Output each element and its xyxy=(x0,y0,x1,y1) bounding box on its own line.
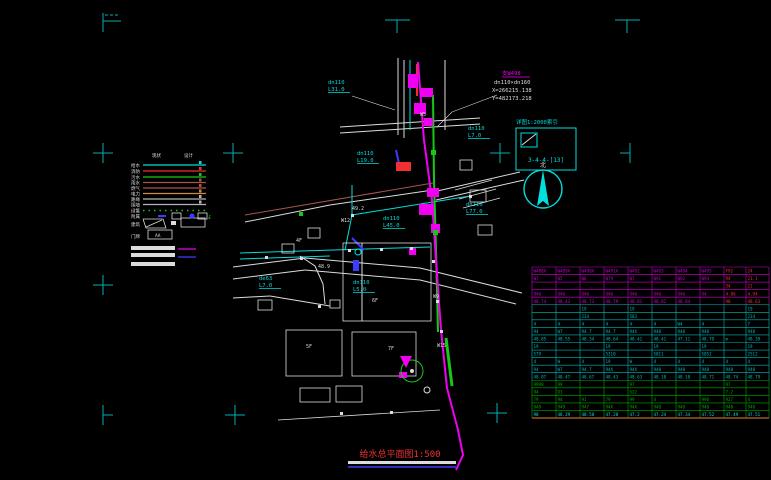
svg-text:4: 4 xyxy=(678,359,681,364)
svg-text:48.79: 48.79 xyxy=(606,299,619,304)
svg-text:948: 948 xyxy=(726,367,734,372)
svg-text:4: 4 xyxy=(654,321,657,326)
svg-text:围墙: 围墙 xyxy=(131,202,140,209)
svg-text:48.81: 48.81 xyxy=(630,299,643,304)
svg-text:948: 948 xyxy=(654,405,662,410)
svg-text:948: 948 xyxy=(702,329,710,334)
svg-text:4: 4 xyxy=(702,321,705,326)
svg-text:4: 4 xyxy=(534,321,537,326)
svg-text:4: 4 xyxy=(582,321,585,326)
svg-text:97: 97 xyxy=(726,382,732,387)
svg-text:现状: 现状 xyxy=(152,152,161,159)
svg-text:W79: W79 xyxy=(606,276,614,281)
svg-text:948: 948 xyxy=(678,329,686,334)
svg-text:19: 19 xyxy=(582,306,588,311)
svg-text:4: 4 xyxy=(654,397,657,402)
svg-text:W: W xyxy=(558,359,561,364)
svg-text:94.7: 94.7 xyxy=(582,367,593,372)
svg-text:dn110: dn110 xyxy=(328,80,345,86)
svg-text:948: 948 xyxy=(702,367,710,372)
svg-text:48.71: 48.71 xyxy=(702,374,715,379)
svg-text:47.24: 47.24 xyxy=(654,412,667,417)
coordinate-annotation: 支W498dn110×dn160X=266215.138Y=482173.218 xyxy=(492,69,532,102)
svg-text:给水: 给水 xyxy=(131,162,140,169)
svg-text:W4: W4 xyxy=(678,321,684,326)
svg-text:4: 4 xyxy=(748,359,751,364)
svg-text:94X: 94X xyxy=(606,367,614,372)
svg-text:W7: W7 xyxy=(534,276,540,281)
svg-text:19: 19 xyxy=(630,306,636,311)
svg-text:49.2: 49.2 xyxy=(352,206,364,212)
svg-text:48.10: 48.10 xyxy=(654,374,667,379)
svg-text:47.52: 47.52 xyxy=(702,412,715,417)
svg-text:19: 19 xyxy=(606,344,612,349)
svg-text:47.51: 47.51 xyxy=(748,412,761,417)
svg-text:W5: W5 xyxy=(558,276,564,281)
svg-text:4: 4 xyxy=(558,321,561,326)
svg-text:47.11: 47.11 xyxy=(678,337,691,342)
svg-text:9998: 9998 xyxy=(534,382,545,387)
svg-text:48.84: 48.84 xyxy=(678,299,691,304)
svg-text:94X: 94X xyxy=(630,405,638,410)
svg-text:4: 4 xyxy=(630,321,633,326)
svg-text:路缘: 路缘 xyxy=(131,196,140,203)
svg-text:W491A: W491A xyxy=(606,269,619,274)
svg-text:99: 99 xyxy=(630,397,636,402)
svg-text:948: 948 xyxy=(654,367,662,372)
svg-text:48.55: 48.55 xyxy=(558,337,571,342)
svg-text:948: 948 xyxy=(726,405,734,410)
svg-text:19: 19 xyxy=(748,344,754,349)
svg-text:4: 4 xyxy=(606,321,609,326)
svg-text:946: 946 xyxy=(678,291,686,296)
svg-text:94.7: 94.7 xyxy=(606,329,617,334)
svg-text:19: 19 xyxy=(534,344,540,349)
svg-text:W488A: W488A xyxy=(534,269,547,274)
svg-text:4: 4 xyxy=(654,359,657,364)
svg-text:4F: 4F xyxy=(296,238,302,244)
svg-text:AA: AA xyxy=(155,233,161,239)
svg-text:7: 7 xyxy=(748,321,751,326)
legend: 现状设计给水消防污水雨水燃气电力路缘围墙绿篱 xyxy=(131,152,206,215)
svg-text:948: 948 xyxy=(748,329,756,334)
svg-text:48.79: 48.79 xyxy=(748,374,761,379)
svg-text:W494: W494 xyxy=(678,269,689,274)
svg-text:19: 19 xyxy=(748,306,754,311)
svg-text:47.49: 47.49 xyxy=(726,412,739,417)
svg-text:雨水: 雨水 xyxy=(131,180,140,187)
svg-text:94: 94 xyxy=(534,329,540,334)
svg-text:L7.0: L7.0 xyxy=(259,283,272,289)
svg-text:48.05: 48.05 xyxy=(534,337,547,342)
svg-text:dn110: dn110 xyxy=(466,202,483,208)
svg-text:绿篱: 绿篱 xyxy=(131,208,140,215)
svg-text:48.74: 48.74 xyxy=(726,374,739,379)
svg-text:949: 949 xyxy=(558,405,566,410)
svg-text:7F: 7F xyxy=(388,346,394,352)
svg-text:94X: 94X xyxy=(630,367,638,372)
svg-text:4: 4 xyxy=(726,359,729,364)
svg-text:79: 79 xyxy=(606,397,612,402)
svg-text:W492: W492 xyxy=(630,269,641,274)
svg-text:34: 34 xyxy=(726,284,732,289)
svg-text:579: 579 xyxy=(534,352,542,357)
svg-text:W7: W7 xyxy=(558,329,564,334)
svg-text:48.82: 48.82 xyxy=(654,299,667,304)
svg-text:583: 583 xyxy=(630,314,638,319)
svg-text:48.43: 48.43 xyxy=(558,299,571,304)
svg-text:W5: W5 xyxy=(420,112,426,118)
svg-text:98: 98 xyxy=(534,412,540,417)
svg-text:dn110: dn110 xyxy=(383,216,400,222)
svg-text:927: 927 xyxy=(726,397,734,402)
svg-text:48.63: 48.63 xyxy=(748,299,761,304)
svg-text:£: £ xyxy=(208,215,211,221)
svg-text:de63: de63 xyxy=(259,276,272,282)
svg-text:电力: 电力 xyxy=(131,191,140,198)
svg-text:48.73: 48.73 xyxy=(582,299,595,304)
svg-text:48.79: 48.79 xyxy=(702,337,715,342)
svg-text:48.41: 48.41 xyxy=(654,337,667,342)
svg-text:4: 4 xyxy=(748,397,751,402)
svg-text:946: 946 xyxy=(606,291,614,296)
svg-text:4: 4 xyxy=(702,359,705,364)
svg-text:948: 948 xyxy=(654,329,662,334)
svg-text:5310: 5310 xyxy=(606,352,617,357)
svg-text:7.2: 7.2 xyxy=(726,389,734,394)
svg-text:97: 97 xyxy=(630,382,636,387)
svg-text:L7.0: L7.0 xyxy=(468,133,481,139)
svg-text:47.28: 47.28 xyxy=(606,412,619,417)
svg-text:5F: 5F xyxy=(306,344,312,350)
svg-text:W: W xyxy=(630,359,633,364)
svg-text:234: 234 xyxy=(582,314,590,319)
svg-text:48.63: 48.63 xyxy=(630,374,643,379)
svg-text:79: 79 xyxy=(534,397,540,402)
svg-text:48.41: 48.41 xyxy=(630,337,643,342)
svg-text:99: 99 xyxy=(558,382,564,387)
data-table: W488AW489AW490AW491AW492W493W494W495F922… xyxy=(532,267,769,418)
svg-text:消防: 消防 xyxy=(131,168,140,175)
svg-text:94: 94 xyxy=(558,397,564,402)
svg-text:91: 91 xyxy=(582,397,588,402)
cad-sheet: 4F6F5F7FW9W12W1548.949.2W5W3附属建筑门牌AA£dn1… xyxy=(0,0,771,480)
cad-viewport[interactable]: 4F6F5F7FW9W12W1548.949.2W5W3附属建筑门牌AA£dn1… xyxy=(0,0,771,480)
svg-text:48.67: 48.67 xyxy=(582,374,595,379)
svg-text:48.10: 48.10 xyxy=(678,374,691,379)
svg-text:污水: 污水 xyxy=(131,174,140,181)
svg-text:948: 948 xyxy=(678,405,686,410)
svg-text:94.7: 94.7 xyxy=(582,329,593,334)
svg-text:北: 北 xyxy=(540,161,546,169)
svg-text:支W498: 支W498 xyxy=(502,69,521,77)
svg-text:设计: 设计 xyxy=(184,152,193,159)
svg-text:19: 19 xyxy=(702,344,708,349)
svg-text:燃气: 燃气 xyxy=(131,185,140,192)
svg-text:946: 946 xyxy=(630,291,638,296)
svg-text:48.39: 48.39 xyxy=(748,337,761,342)
svg-text:24: 24 xyxy=(748,269,754,274)
svg-text:W495: W495 xyxy=(702,269,713,274)
svg-text:47.34: 47.34 xyxy=(678,412,691,417)
svg-text:94: 94 xyxy=(726,276,732,281)
svg-text:234: 234 xyxy=(748,314,756,319)
svg-text:19: 19 xyxy=(606,359,612,364)
svg-text:4: 4 xyxy=(534,359,537,364)
svg-text:990: 990 xyxy=(702,397,710,402)
map-layer xyxy=(131,58,769,470)
svg-text:94: 94 xyxy=(702,291,708,296)
svg-text:W493: W493 xyxy=(654,269,665,274)
svg-text:dn110: dn110 xyxy=(353,280,370,286)
svg-text:48.43: 48.43 xyxy=(606,374,619,379)
svg-text:L77.0: L77.0 xyxy=(466,209,483,215)
svg-text:L45.0: L45.0 xyxy=(383,223,400,229)
svg-text:W7: W7 xyxy=(630,276,636,281)
svg-text:详图1:2000索引: 详图1:2000索引 xyxy=(516,118,558,126)
svg-text:W91: W91 xyxy=(654,276,662,281)
svg-text:2512: 2512 xyxy=(748,352,759,357)
sheet-title: 给水总平面图1:500 xyxy=(359,448,440,460)
svg-text:L5.0: L5.0 xyxy=(353,287,366,293)
svg-text:W92: W92 xyxy=(678,276,686,281)
svg-text:Y=482173.218: Y=482173.218 xyxy=(492,96,532,102)
svg-text:948: 948 xyxy=(748,367,756,372)
svg-text:94X: 94X xyxy=(630,329,638,334)
svg-text:4.86: 4.86 xyxy=(726,291,737,296)
svg-text:48.47: 48.47 xyxy=(558,374,571,379)
svg-text:L31.0: L31.0 xyxy=(328,87,345,93)
svg-text:48.74: 48.74 xyxy=(534,299,547,304)
svg-text:946: 946 xyxy=(558,291,566,296)
svg-text:4: 4 xyxy=(582,359,585,364)
svg-text:W94: W94 xyxy=(702,276,710,281)
svg-text:48.07: 48.07 xyxy=(534,374,547,379)
svg-text:948: 948 xyxy=(534,405,542,410)
svg-text:522: 522 xyxy=(630,389,638,394)
svg-text:dn110: dn110 xyxy=(357,151,374,157)
svg-text:48.29: 48.29 xyxy=(558,412,571,417)
svg-text:48.58: 48.58 xyxy=(582,412,595,417)
svg-text:建筑: 建筑 xyxy=(131,221,140,228)
svg-text:94: 94 xyxy=(534,389,540,394)
svg-text:21: 21 xyxy=(748,284,754,289)
svg-text:F92: F92 xyxy=(726,269,734,274)
svg-text:W7: W7 xyxy=(558,367,564,372)
svg-text:W6: W6 xyxy=(582,276,588,281)
svg-text:W15: W15 xyxy=(437,343,446,349)
svg-text:948: 948 xyxy=(748,405,756,410)
svg-text:W12: W12 xyxy=(341,218,350,224)
svg-text:W490A: W490A xyxy=(582,269,595,274)
svg-text:21.1: 21.1 xyxy=(748,276,759,281)
svg-text:946: 946 xyxy=(582,291,590,296)
svg-text:47.2: 47.2 xyxy=(630,412,641,417)
map-text-labels: 4F6F5F7FW9W12W1548.949.2W5W3附属建筑门牌AA£ xyxy=(131,112,446,352)
svg-text:W489A: W489A xyxy=(558,269,571,274)
svg-text:948: 948 xyxy=(702,405,710,410)
svg-text:948: 948 xyxy=(678,367,686,372)
svg-text:W9: W9 xyxy=(433,294,439,300)
svg-text:946: 946 xyxy=(534,291,542,296)
svg-text:98: 98 xyxy=(726,299,732,304)
svg-text:dn110×dn160: dn110×dn160 xyxy=(494,80,530,86)
svg-text:X=266215.138: X=266215.138 xyxy=(492,88,532,94)
svg-text:48.64: 48.64 xyxy=(606,337,619,342)
svg-text:dn110: dn110 xyxy=(468,126,485,132)
svg-text:94X: 94X xyxy=(606,405,614,410)
svg-text:946: 946 xyxy=(654,291,662,296)
svg-text:5852: 5852 xyxy=(702,352,713,357)
svg-text:给水总平面图1:500: 给水总平面图1:500 xyxy=(359,448,440,460)
svg-text:4.94: 4.94 xyxy=(748,291,759,296)
svg-text:D3: D3 xyxy=(558,389,564,394)
svg-text:5811: 5811 xyxy=(654,352,665,357)
svg-text:947: 947 xyxy=(582,405,590,410)
svg-text:48.34: 48.34 xyxy=(582,337,595,342)
svg-text:m: m xyxy=(726,337,729,342)
svg-text:6F: 6F xyxy=(372,298,378,304)
svg-text:门牌: 门牌 xyxy=(131,233,140,240)
svg-text:L19.0: L19.0 xyxy=(357,158,374,164)
north-arrow: 北 xyxy=(524,161,562,208)
svg-text:48.9: 48.9 xyxy=(318,264,330,270)
svg-text:94: 94 xyxy=(534,367,540,372)
svg-text:19: 19 xyxy=(654,344,660,349)
svg-text:W3: W3 xyxy=(426,208,432,214)
